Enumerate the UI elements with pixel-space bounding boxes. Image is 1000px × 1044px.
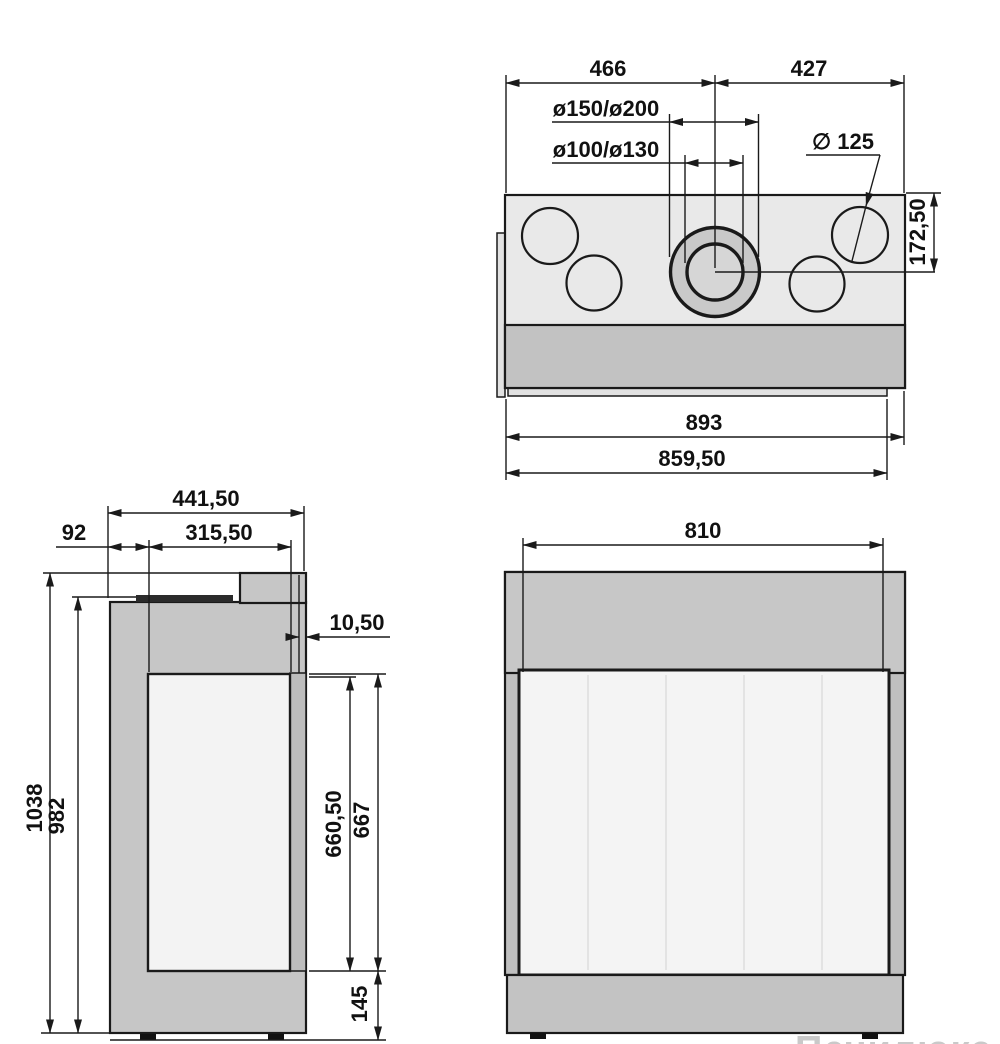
side-view-feet — [140, 1034, 284, 1040]
dim-label-air-pipe: ø100/ø130 — [553, 137, 659, 162]
side-view-top-step — [240, 573, 306, 603]
front-view-base — [507, 975, 903, 1033]
fireplace-dimension-drawing: 466 427 ø150/ø200 ø100/ø130 ∅ 125 172,50 — [0, 0, 1000, 1044]
dim-label-660-50: 660,50 — [321, 790, 346, 857]
dim-label-427: 427 — [791, 56, 828, 81]
dimension-427: 427 — [715, 56, 904, 83]
dimension-893: 893 — [506, 410, 904, 437]
top-view-front-band — [505, 325, 905, 388]
dim-label-441-50: 441,50 — [172, 486, 239, 511]
side-view: 441,50 92 315,50 10,50 1038 982 660,50 — [22, 486, 390, 1040]
side-view-top-plate — [136, 595, 233, 602]
dimension-92: 92 — [56, 520, 149, 547]
dimension-810: 810 — [523, 518, 883, 545]
front-view-top-band — [505, 572, 905, 673]
watermark: Печилюкс.ру — [795, 1029, 1000, 1044]
front-view: 810 — [505, 518, 905, 1039]
dim-label-859-50: 859,50 — [658, 446, 725, 471]
top-view-left-flange — [497, 233, 505, 397]
dimension-667: 667 — [349, 674, 378, 971]
dimension-466: 466 — [506, 56, 715, 83]
dim-label-810: 810 — [685, 518, 722, 543]
dimension-859-50: 859,50 — [506, 446, 887, 473]
side-view-door-frame — [290, 673, 306, 971]
dimension-145: 145 — [347, 971, 378, 1040]
dimension-172-50: 172,50 — [905, 193, 934, 272]
front-view-glass-frame — [519, 670, 889, 975]
dim-label-893: 893 — [686, 410, 723, 435]
dim-label-flue-pipe: ø150/ø200 — [553, 96, 659, 121]
dim-label-outlet-125: ∅ 125 — [812, 129, 874, 154]
dimension-flue-pipe: ø150/ø200 — [552, 96, 759, 122]
top-view: 466 427 ø150/ø200 ø100/ø130 ∅ 125 172,50 — [497, 56, 941, 480]
dim-label-466: 466 — [590, 56, 627, 81]
dim-label-145: 145 — [347, 986, 372, 1023]
dim-label-10-50: 10,50 — [329, 610, 384, 635]
dimension-315-50: 315,50 — [149, 520, 291, 547]
dimension-660-50: 660,50 — [321, 677, 350, 971]
dim-label-982: 982 — [44, 798, 69, 835]
dim-label-172-50: 172,50 — [905, 198, 930, 265]
side-view-window — [148, 674, 290, 971]
dim-label-315-50: 315,50 — [185, 520, 252, 545]
dim-label-667: 667 — [349, 802, 374, 839]
dimension-441-50: 441,50 — [108, 486, 304, 513]
dimension-982: 982 — [44, 597, 78, 1033]
dim-label-92: 92 — [62, 520, 86, 545]
top-view-rear-panel-lip — [508, 388, 887, 396]
technical-drawing-page: 466 427 ø150/ø200 ø100/ø130 ∅ 125 172,50 — [0, 0, 1000, 1044]
